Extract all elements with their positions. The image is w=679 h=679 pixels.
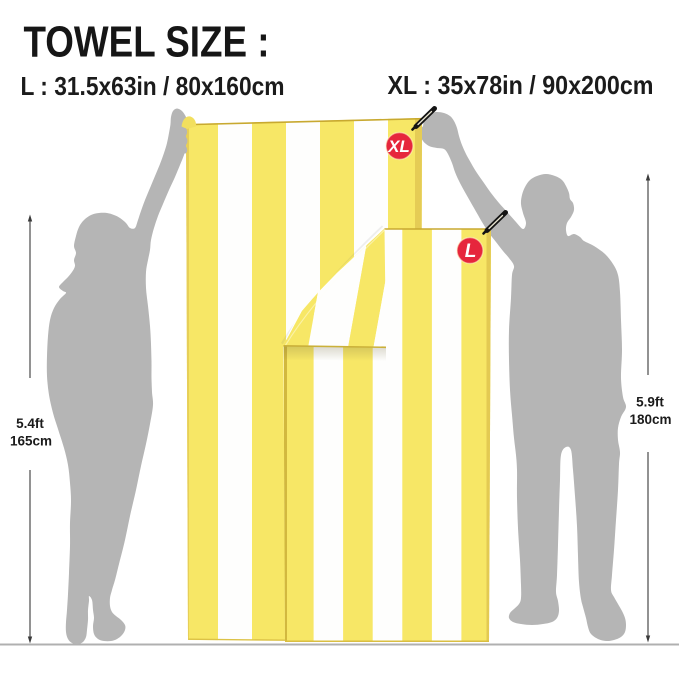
svg-text:180cm: 180cm (629, 412, 671, 427)
svg-text:TOWEL SIZE :: TOWEL SIZE : (24, 18, 270, 67)
svg-text:165cm: 165cm (10, 434, 52, 449)
svg-text:XL: XL (387, 138, 410, 156)
svg-text:L : 31.5x63in / 80x160cm: L : 31.5x63in / 80x160cm (21, 71, 285, 101)
svg-text:5.4ft: 5.4ft (16, 416, 44, 431)
svg-text:5.9ft: 5.9ft (636, 395, 664, 410)
svg-text:XL : 35x78in / 90x200cm: XL : 35x78in / 90x200cm (388, 70, 654, 100)
svg-text:L: L (465, 241, 477, 262)
